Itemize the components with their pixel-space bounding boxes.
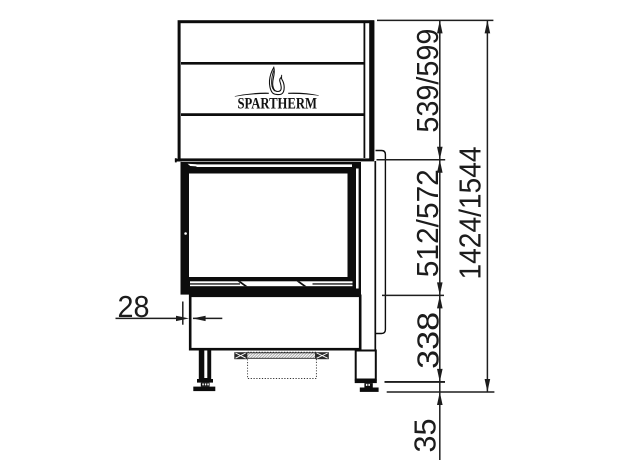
svg-text:35: 35 (408, 419, 443, 453)
svg-text:1424/1544: 1424/1544 (453, 147, 488, 280)
svg-text:512/572: 512/572 (410, 169, 445, 277)
svg-text:338: 338 (410, 312, 445, 369)
svg-text:28: 28 (118, 289, 150, 324)
svg-text:SPARTHERM: SPARTHERM (237, 95, 317, 112)
svg-text:539/599: 539/599 (410, 29, 445, 133)
